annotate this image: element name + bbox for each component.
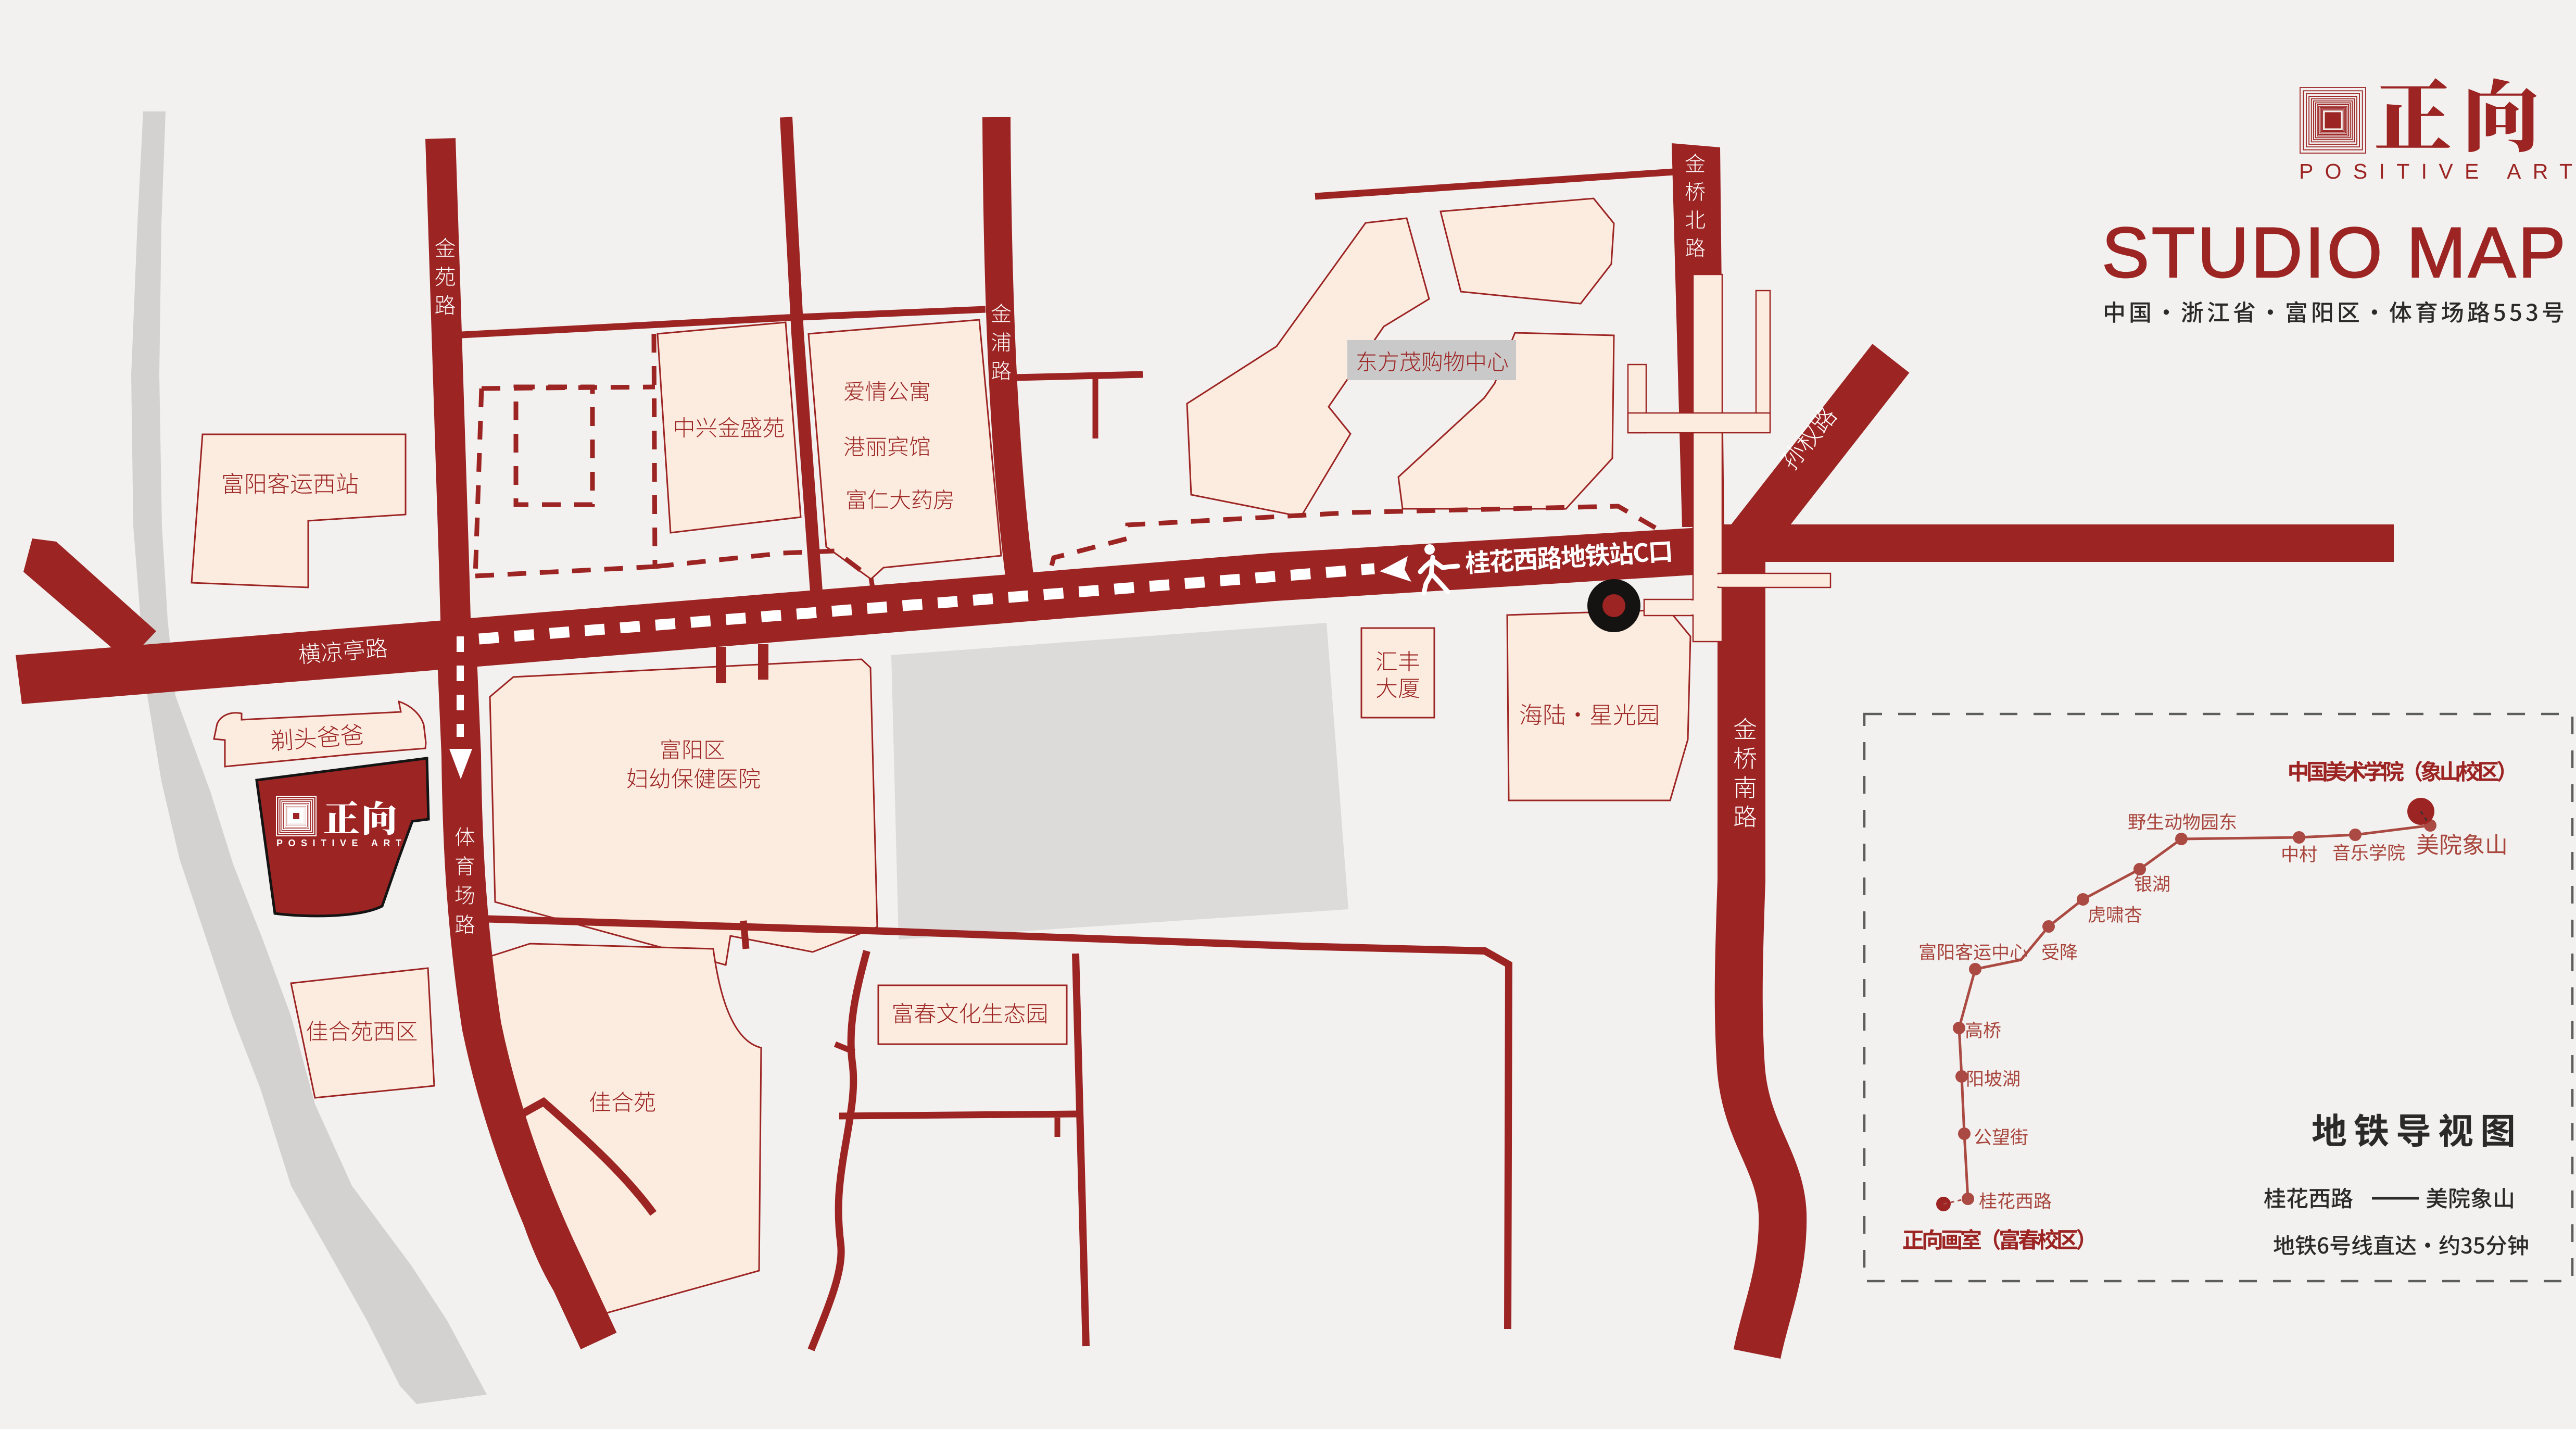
- svg-text:STUDIO MAP: STUDIO MAP: [2102, 213, 2566, 293]
- svg-text:POSITIVE ART: POSITIVE ART: [276, 838, 407, 848]
